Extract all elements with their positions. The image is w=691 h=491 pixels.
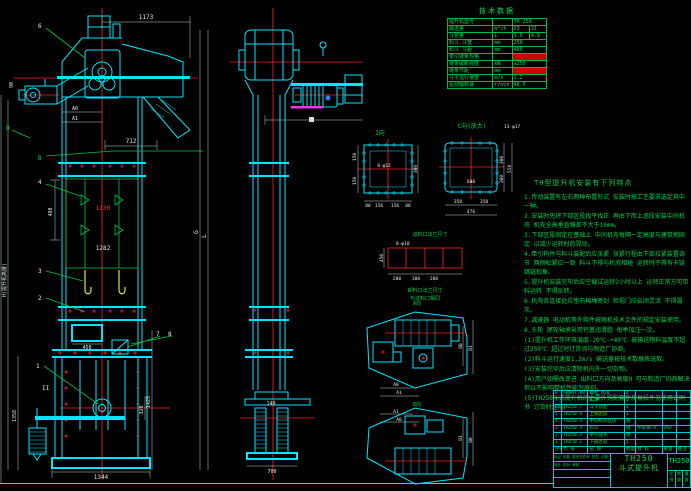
dim-1358: 1358 [12, 410, 18, 422]
bom-note [676, 398, 690, 405]
plan-b-b1: B1 [458, 435, 464, 441]
bom-material [636, 419, 662, 426]
bom-row: 8GB907-88螺栓 M204 [554, 391, 691, 398]
tech-unit: r/min [493, 82, 512, 89]
tech-unit: m³/h [493, 26, 512, 33]
technical-data-table: 技术数据 提升机型号TH 250 输送量m³/h2331 斗容量L3.04.8 … [447, 6, 547, 89]
bom-qty: 组 [625, 419, 636, 426]
bom-material [636, 433, 662, 440]
detail-c-b0: 350 [454, 199, 462, 205]
table-row: 提升机型号TH 250 [448, 19, 547, 26]
note-line: 5.提升机安装完毕后应空载试运转2小时以上 运转正常方可带料运转 不得反转。 [524, 278, 690, 296]
detail-i-b3: 80 [405, 203, 411, 209]
bom-note [676, 440, 690, 447]
tech-unit: m/s [493, 75, 512, 82]
bom-qty: 1 [625, 440, 636, 447]
chain-links [85, 270, 125, 294]
drawing-model: TH250 [611, 454, 667, 464]
tech-value: 23 [512, 26, 529, 33]
tech-unit [493, 54, 512, 61]
tech-label: 料斗 斗宽 [448, 40, 493, 47]
bom-note [676, 426, 690, 433]
bom-weight [662, 405, 676, 412]
bom-header-row: 序号代 号名 称数量材 料重量备注 [554, 447, 691, 454]
section-ii: II [42, 385, 50, 392]
tech-label: 斗子运行速度 [448, 75, 493, 82]
bom-code: GB907-88 [562, 391, 588, 398]
bom-qty: 1 [625, 412, 636, 419]
bom-material [636, 391, 662, 398]
dim-140: 140 [266, 401, 275, 407]
plan-b-a1: A1 [393, 409, 399, 415]
tech-value: 3.0 [512, 33, 529, 40]
tech-label: 链条节距 [448, 68, 493, 75]
bill-of-materials: 8GB907-88螺栓 M204 7机架1 6TH250.7斗子装配1 5TH2… [553, 390, 691, 488]
tech-label: 料斗 斗距 [448, 47, 493, 54]
qty-cell: 数量 [676, 471, 684, 487]
dim-1425: 1425 [146, 396, 152, 408]
bom-no: 8 [554, 391, 562, 398]
tech-unit [493, 19, 512, 26]
balloon-6: 6 [38, 23, 42, 30]
bom-row: 4TH250.4中间机壳区段组 [554, 419, 691, 426]
bom-row: 7机架1 [554, 398, 691, 405]
detail-i-b2: 156 [391, 203, 399, 209]
bom-no: 6 [554, 405, 562, 412]
dim-320: 320 [139, 405, 145, 414]
balloon-leaders [12, 28, 172, 404]
plan-detail-views: A向 B0 B1 A0 A1 B向 A1 A0 B1 [355, 296, 505, 491]
revision-strip: 标记 处数 更改文件号 签名 日期 设计 校对 审核 [554, 454, 611, 487]
side-drive-unit [291, 75, 363, 109]
tech-unit: mm [493, 47, 512, 54]
note-line: 4.牵引构件与料斗装配后应张紧 张紧行程由下部拉紧装置调节 两侧松紧应一致 料斗… [524, 250, 690, 277]
bom-weight [662, 419, 676, 426]
bom-weight [662, 412, 676, 419]
tech-label: 提升机型号 [448, 19, 493, 26]
plan-b [367, 408, 473, 484]
dim-1173: 1173 [139, 14, 154, 21]
detail-c-r-total: 558 [507, 165, 513, 173]
table-row: 料斗 斗宽mm250 [448, 40, 547, 47]
tech-label: 输送量 [448, 26, 493, 33]
installation-notes: TH型提升机安装有下列特点 1.传动装置有左右两种布置形式 安装时按工艺要求选定… [524, 178, 690, 413]
detail-c-b1: 350 [480, 199, 488, 205]
bom-name: 上部区段 [588, 412, 625, 419]
bom-row: 2TH250.2牵引链条组 [554, 433, 691, 440]
weight-cell: 重量 [683, 471, 690, 487]
detail-c-r0: 300 [499, 156, 505, 164]
note-line: 6.机壳各连接处应垫石棉绳密封 检视门应启闭灵活 不得漏灰。 [524, 297, 690, 315]
bom-weight [662, 440, 676, 447]
detail-view-c: C向(放大) 13-φ17 600 350 350 476 300 300 55… [432, 115, 537, 225]
detail-c-total: 476 [467, 209, 475, 215]
table-row: 斗子运行速度m/s1.2 [448, 75, 547, 82]
bom-material [636, 398, 662, 405]
table-row: 驱动轴转速r/min48.5 [448, 82, 547, 89]
plan-a-a0: A0 [393, 382, 399, 388]
plan-a-title: A向 [413, 300, 421, 307]
cad-canvas[interactable]: 1173 712 A0 A1 90 480 1130 1282 450 1425… [0, 0, 691, 491]
tech-value-highlight [512, 54, 546, 61]
bom-note [676, 391, 690, 398]
inlet-title: 进料口法兰尺寸 [412, 231, 447, 238]
bom-code: TH250.1 [562, 440, 588, 447]
bom-header: 材 料 [636, 447, 662, 454]
table-row: 斗容量L3.04.8 [448, 33, 547, 40]
drawing-number: TH250 [668, 454, 690, 471]
inlet-hole: 8-φ18 [396, 241, 410, 247]
inlet-note-1: 卸料口法兰尺寸 [407, 287, 442, 294]
revision-strip-row: 标记 处数 更改文件号 签名 日期 [554, 454, 610, 462]
tech-unit: L [493, 33, 512, 40]
note-line: 2.安装时先将下部区段找平找正 再由下而上逐段安装中间机壳 机壳全高垂直偏差不大… [524, 212, 690, 230]
detail-i-title: I向 [375, 129, 385, 137]
dim-480: 480 [48, 207, 54, 216]
tech-unit: mm [493, 68, 512, 75]
label-g: G [193, 230, 200, 234]
detail-c-center: 600 [467, 179, 475, 185]
bom-note [676, 419, 690, 426]
plan-b-a0: A0 [396, 417, 402, 423]
detail-i-b1: 156 [375, 203, 383, 209]
inlet-flange-grid [388, 248, 462, 268]
detail-i-hole: 8-φ12 [377, 163, 391, 169]
note-line: 8.头轮 尾轮轴承采用钙基润滑脂 每季加注一次。 [524, 326, 690, 335]
bom-row: 6TH250.7斗子装配1 [554, 405, 691, 412]
bom-note [676, 433, 690, 440]
side-boot [245, 392, 310, 459]
tech-value: 480 [512, 47, 546, 54]
inlet-b2: 200 [430, 276, 438, 282]
bom-no: 4 [554, 419, 562, 426]
bom-header: 备注 [676, 447, 690, 454]
balloon-7: 7 [156, 331, 160, 338]
bom-material [636, 440, 662, 447]
plan-a-b1: B1 [468, 345, 474, 351]
bom-code: TH250.7 [562, 405, 588, 412]
detail-i-dim-r: 300 [413, 165, 419, 173]
bom-qty: 组 [625, 433, 636, 440]
middle-section [46, 151, 203, 268]
plan-a-a1: A1 [396, 390, 402, 396]
bom-qty: 组 [625, 426, 636, 433]
side-casing [245, 95, 293, 390]
side-centerlines [230, 8, 363, 480]
inlet-dim-left: 450 [379, 254, 385, 262]
dim-a1: A1 [72, 116, 78, 122]
note-line: 7.减速器 电动机等外购件按随机技术文件的规定安装使用。 [524, 316, 690, 325]
note-line: 3.下部区段固定在基础上 中间机壳每隔一定高度与建筑物固定 以减少运转时的晃动。 [524, 231, 690, 249]
title-block: 标记 处数 更改文件号 签名 日期 设计 校对 审核 TH250 斗式提升机 T… [553, 454, 691, 488]
balloon-2: 2 [38, 295, 42, 302]
bom-qty: 4 [625, 391, 636, 398]
bom-code: TH250.2 [562, 433, 588, 440]
bom-no: 7 [554, 398, 562, 405]
tech-label: 链条破断强度 [448, 61, 493, 68]
label-l: L [201, 234, 208, 238]
drawing-product-name: 斗式提升机 [611, 464, 667, 473]
tech-label: 驱动轴转速 [448, 82, 493, 89]
bom-material: 中碳钢-A [636, 426, 662, 433]
note-line: 1.传动装置有左右两种布置形式 安装时按工艺要求选定其中一种。 [524, 193, 690, 211]
dim-700: 700 [267, 469, 276, 475]
signature-strip-row: 设计 校对 审核 [554, 462, 610, 470]
bom-header: 代 号 [562, 447, 588, 454]
balloon-1: 1 [36, 363, 40, 370]
table-row: 链条节距mm [448, 68, 547, 75]
bom-no: 3 [554, 426, 562, 433]
tech-value: 250 [512, 40, 546, 47]
height-label: H(提升机高度) [1, 263, 8, 297]
magenta-rail [291, 106, 323, 109]
bom-material [636, 405, 662, 412]
bom-no: 2 [554, 433, 562, 440]
bom-weight [662, 391, 676, 398]
bom-row: 5TH250.6上部区段1 [554, 412, 691, 419]
balloon-3: 3 [38, 268, 42, 275]
detail-i-dim-l2: 150 [352, 177, 358, 185]
tech-value: 31 [529, 26, 546, 33]
tech-label: 斗容量 [448, 33, 493, 40]
tech-value: TH 250 [512, 19, 546, 26]
drive-motor [19, 68, 88, 104]
bom-code: TH250.3 [562, 426, 588, 433]
detail-c-title: C向(放大) [458, 122, 487, 130]
bom-name: 中间机壳区段 [588, 419, 625, 426]
bom-note [676, 405, 690, 412]
inspection-door [72, 325, 102, 341]
bom-header: 数量 [625, 447, 636, 454]
bom-name: 螺栓 M20 [588, 391, 625, 398]
bom-name: 下部区段 [588, 440, 625, 447]
tech-value-highlight [512, 68, 546, 75]
plan-a [367, 312, 473, 396]
detail-i-b0: 80 [365, 203, 371, 209]
dim-1130: 1130 [96, 205, 111, 212]
inlet-b1: 300 [412, 276, 420, 282]
detail-view-i: I向 8-φ12 150 150 300 80 156 156 80 [348, 125, 432, 225]
table-row: 料斗 斗距mm480 [448, 47, 547, 54]
bom-row: 3TH250.3料斗组中碳钢-A203 [554, 426, 691, 433]
bom-material [636, 412, 662, 419]
dim-90: 90 [9, 82, 15, 88]
detail-i-dim-l1: 150 [352, 153, 358, 161]
bom-header: 重量 [662, 447, 676, 454]
tech-label: 牵引链条规格 [448, 54, 493, 61]
bom-weight: 203 [662, 426, 676, 433]
tech-unit: kN [493, 61, 512, 68]
inlet-b0: 200 [393, 276, 401, 282]
revision-strip-empty [554, 470, 610, 478]
label-b: B [38, 155, 42, 162]
side-elevation-view: 140 700 [225, 0, 365, 491]
tech-value: 4.8 [529, 33, 546, 40]
tech-value: 48.5 [512, 82, 546, 89]
bom-code: TH250.6 [562, 412, 588, 419]
front-elevation-view: 1173 712 A0 A1 90 480 1130 1282 450 1425… [0, 0, 225, 491]
dim-1282: 1282 [96, 245, 111, 252]
bom-note [676, 412, 690, 419]
scale-cell: 比例 [668, 471, 676, 487]
bom-no: 5 [554, 412, 562, 419]
note-line: (1)提升机工作环境温度-20℃~+40℃ 被输送物料温度不超过250℃ 超过时… [524, 336, 690, 354]
plan-b-title: B向 [413, 401, 421, 408]
bom-name: 机架 [588, 398, 625, 405]
balloon-4: 4 [38, 179, 42, 186]
table-row: 输送量m³/h2331 [448, 26, 547, 33]
drawing-title: TH250 斗式提升机 [611, 454, 668, 487]
bom-no: 1 [554, 440, 562, 447]
boot-section [29, 340, 150, 468]
dim-1344: 1344 [94, 474, 109, 481]
label-d: D [6, 125, 10, 132]
table-row: 链条破断强度kN≥250 [448, 61, 547, 68]
drawing-frame-border [0, 483, 553, 484]
bom-name: 料斗 [588, 426, 625, 433]
plan-a-b0: B0 [458, 343, 464, 349]
notes-title: TH型提升机安装有下列特点 [534, 178, 690, 189]
bom-weight [662, 433, 676, 440]
detail-c-r1: 300 [499, 175, 505, 183]
note-line: (2)料斗运行速度1.2m/s 输送量按技术数据表选取。 [524, 355, 690, 364]
dim-712: 712 [126, 138, 137, 145]
bom-name: 牵引链条 [588, 433, 625, 440]
bom-qty: 1 [625, 398, 636, 405]
tech-table-title: 技术数据 [447, 6, 547, 16]
bom-code: TH250.4 [562, 419, 588, 426]
bom-name: 斗子装配 [588, 405, 625, 412]
note-line: (3)安装完毕后应清除机内外一切杂物。 [524, 365, 690, 374]
bom-weight [662, 398, 676, 405]
bom-header: 名 称 [588, 447, 625, 454]
tech-unit: mm [493, 40, 512, 47]
detail-c-hole: 13-φ17 [504, 124, 521, 130]
side-dims [247, 115, 363, 466]
balloon-8: 8 [168, 331, 172, 338]
bom-header: 序号 [554, 447, 562, 454]
bom-qty: 1 [625, 405, 636, 412]
shaft-dot [326, 96, 331, 101]
bom-row: 1TH250.1下部区段1 [554, 440, 691, 447]
bom-code [562, 398, 588, 405]
table-row: 牵引链条规格 [448, 54, 547, 61]
tech-value: ≥250 [512, 61, 546, 68]
tech-value: 1.2 [512, 75, 546, 82]
dim-450: 450 [82, 345, 91, 351]
dim-a0: A0 [72, 106, 78, 112]
plan-b-b0: B0 [468, 437, 474, 443]
